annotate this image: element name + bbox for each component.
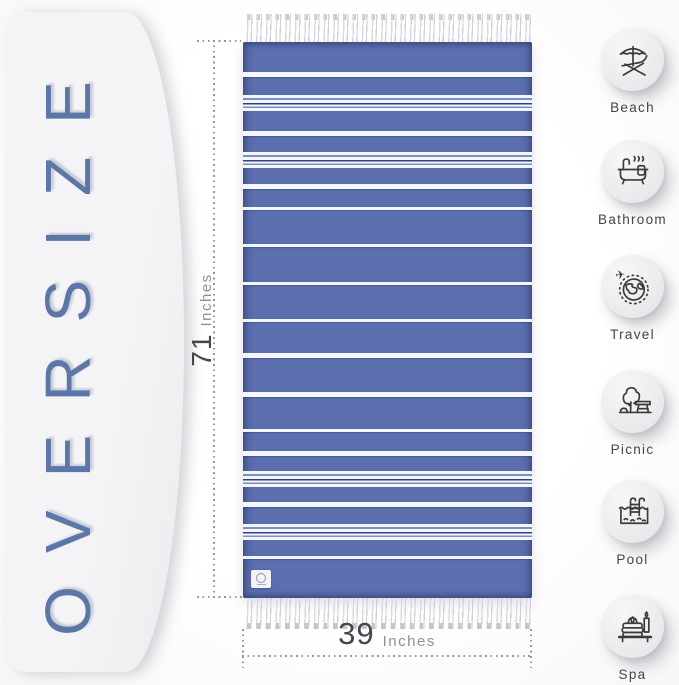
icon-circle — [601, 480, 664, 543]
towel — [243, 42, 532, 598]
towel-stripe — [243, 392, 532, 397]
icon-circle — [601, 370, 664, 433]
towel-stripe — [243, 451, 532, 456]
towel-stripe — [243, 524, 532, 540]
height-dim-label: 71 Inches — [186, 273, 218, 366]
feature-label: Bathroom — [598, 212, 667, 227]
height-value: 71 — [186, 334, 218, 367]
bathroom-icon — [613, 152, 653, 192]
towel-stripe — [243, 471, 532, 487]
towel-stripe — [243, 131, 532, 136]
brand-logo-icon — [256, 573, 266, 583]
width-dim-label: 39 Inches — [243, 618, 531, 652]
oversize-panel: OVERSIZE — [6, 12, 184, 672]
width-value: 39 — [338, 616, 374, 652]
feature-label: Beach — [610, 100, 655, 115]
feature-label: Travel — [610, 327, 655, 342]
icon-circle — [601, 140, 664, 203]
feature-item-beach: Beach — [571, 28, 679, 115]
icon-circle: ✈ — [601, 255, 664, 318]
towel-stripe — [243, 429, 532, 432]
pool-icon — [613, 492, 653, 532]
oversize-label: OVERSIZE — [36, 48, 100, 636]
towel-stripe — [243, 319, 532, 322]
width-unit: Inches — [383, 633, 436, 652]
towel-stripe — [243, 556, 532, 559]
height-unit: Inches — [198, 273, 217, 326]
towel-stripe — [243, 282, 532, 285]
svg-text:✈: ✈ — [614, 268, 626, 282]
feature-list: Beach Bathroom ✈ Travel — [571, 0, 679, 685]
brand-tag — [251, 570, 271, 588]
icon-circle — [601, 595, 664, 658]
feature-label: Pool — [616, 552, 648, 567]
height-dim-top-tick — [197, 40, 241, 42]
feature-label: Picnic — [611, 442, 655, 457]
icon-circle — [601, 28, 664, 91]
height-dim-bottom-tick — [197, 596, 243, 598]
feature-item-pool: Pool — [571, 480, 679, 567]
feature-label: Spa — [619, 667, 647, 682]
towel-stripe — [243, 207, 532, 210]
towel-stripe — [243, 72, 532, 77]
towel-stripe — [243, 184, 532, 189]
width-dim-line — [242, 655, 532, 657]
feature-item-travel: ✈ Travel — [571, 255, 679, 342]
feature-item-spa: Spa — [571, 595, 679, 682]
feature-item-picnic: Picnic — [571, 370, 679, 457]
towel-stripe — [243, 502, 532, 507]
spa-icon — [613, 607, 653, 647]
towel-stripe — [243, 244, 532, 247]
towel-fringe-top — [245, 14, 532, 42]
towel-stripe — [243, 152, 532, 168]
travel-icon: ✈ — [613, 267, 653, 307]
picnic-icon — [613, 382, 653, 422]
towel-stripe — [243, 95, 532, 111]
beach-icon — [613, 40, 653, 80]
towel-stripe — [243, 353, 532, 358]
fringe-strings — [245, 14, 532, 42]
brand-logo-text — [257, 584, 266, 586]
feature-item-bathroom: Bathroom — [571, 140, 679, 227]
